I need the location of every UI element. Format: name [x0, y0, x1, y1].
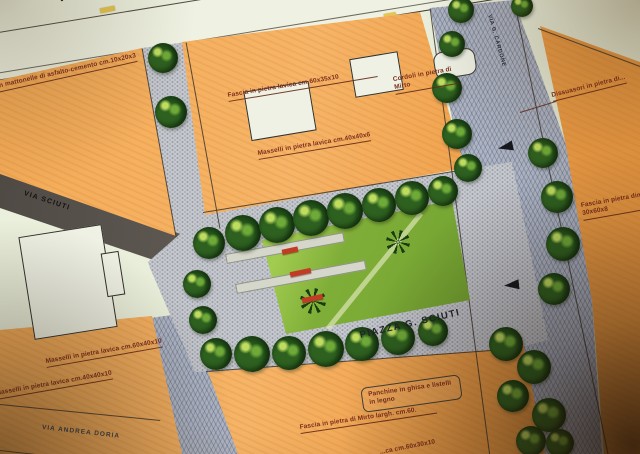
tree-icon [511, 0, 533, 17]
tree-icon [439, 31, 465, 57]
tree-icon [308, 331, 344, 367]
tree-icon [259, 207, 295, 243]
tree-icon [225, 215, 261, 251]
site-plan-photo: VIA F. VIA SCIUTI VIA ANDREA DORIA VIA G… [0, 0, 640, 454]
tree-icon [234, 336, 270, 372]
tree-icon [193, 227, 225, 259]
tree-icon [200, 338, 232, 370]
bench-icon [302, 294, 324, 303]
tree-icon [497, 380, 529, 412]
tree-icon [148, 43, 178, 73]
tree-icon [541, 181, 573, 213]
tree-icon [528, 138, 558, 168]
bench-icon [282, 246, 299, 254]
tree-icon [395, 181, 429, 215]
tree-icon [442, 119, 472, 149]
tree-icon [155, 96, 187, 128]
tree-icon [183, 270, 211, 298]
one-way-arrow-icon [497, 141, 514, 154]
one-way-arrow-icon [504, 279, 520, 291]
tree-icon [546, 227, 580, 261]
tree-icon [516, 426, 546, 454]
tree-icon [517, 350, 551, 384]
tree-icon [454, 154, 482, 182]
tree-icon [538, 273, 570, 305]
tree-icon [327, 193, 363, 229]
tree-icon [189, 306, 217, 334]
tree-icon [362, 188, 396, 222]
tree-icon [293, 200, 329, 236]
tree-icon [448, 0, 474, 23]
bench-icon [290, 268, 312, 277]
tree-icon [489, 327, 523, 361]
tree-icon [272, 336, 306, 370]
tree-icon [428, 176, 458, 206]
tree-icon [546, 429, 574, 454]
